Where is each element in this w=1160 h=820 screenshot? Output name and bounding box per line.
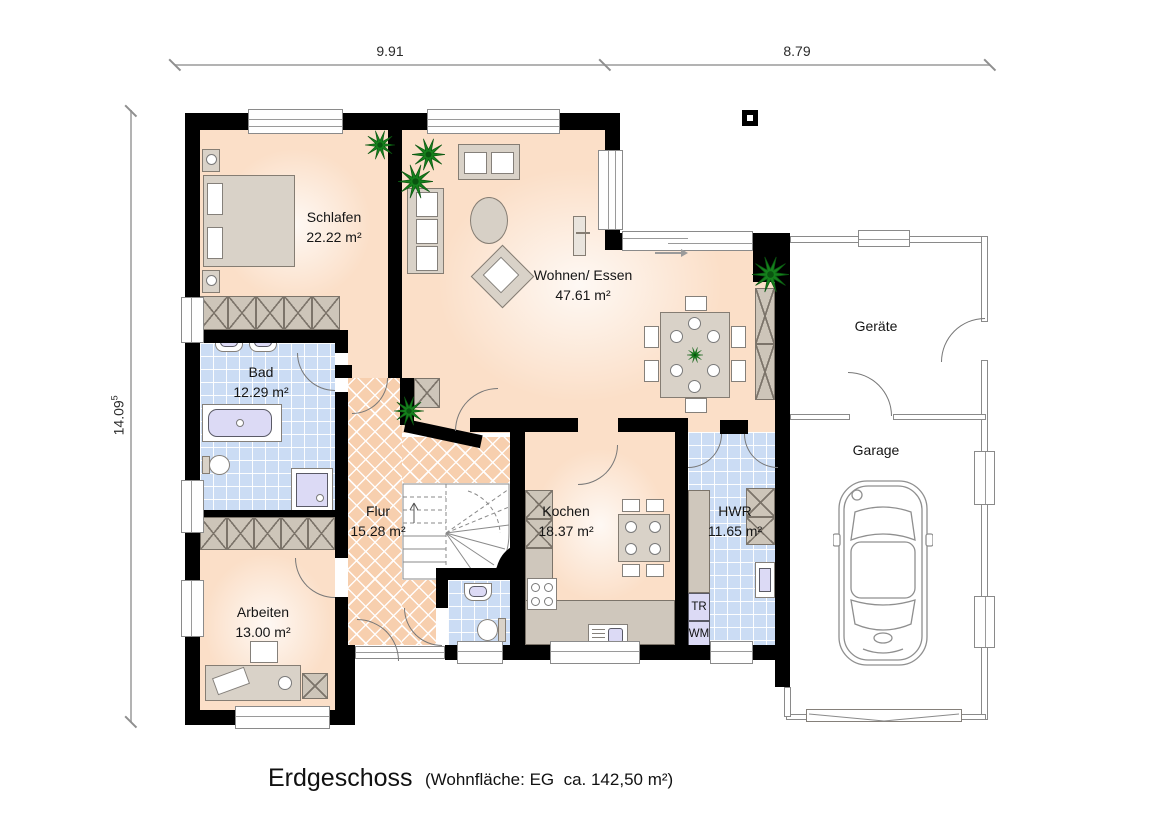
- dining-chair: [644, 360, 659, 382]
- plate: [670, 364, 683, 377]
- bad-cabinet-cell: [227, 517, 254, 550]
- room-name: Garage: [853, 440, 900, 460]
- wardrobe-cell: [284, 296, 312, 330]
- schlafen-label: Schlafen 22.22 m²: [306, 207, 361, 248]
- wardrobe-cell: [312, 296, 340, 330]
- shower-drain-icon: [316, 494, 324, 502]
- pillow: [207, 183, 223, 215]
- wall-bad-arbeiten: [185, 510, 348, 517]
- sliding-door-arrow: [655, 252, 681, 254]
- kochen-label: Kochen 18.37 m²: [538, 501, 593, 542]
- geraete-exterior-door-arc: [941, 318, 985, 362]
- kitchen-chair: [646, 499, 664, 512]
- hwr-label: HWR 11.65 m²: [708, 501, 762, 542]
- burner-icon: [544, 597, 553, 606]
- wardrobe-cell: [228, 296, 256, 330]
- wall-kitchen-west: [510, 430, 525, 645]
- plant-icon: [687, 347, 703, 363]
- window-arbeiten-south: [235, 706, 330, 729]
- toilet: [209, 455, 230, 475]
- wc-toilet-tank: [498, 618, 506, 642]
- bad-cabinet-cell: [308, 517, 335, 550]
- bad-cabinet-cell: [281, 517, 308, 550]
- garage-window-upper: [974, 451, 995, 505]
- sliding-door-arrowhead: [681, 249, 688, 257]
- dryer-label: TR: [688, 602, 710, 614]
- seat-cushion: [464, 152, 487, 174]
- room-area: 15.28 m²: [350, 521, 405, 541]
- window-wohnen-east: [598, 150, 623, 230]
- dim-left-value: 14.095: [110, 385, 127, 445]
- garage-window-lower: [974, 596, 995, 648]
- room-name: Wohnen/ Essen: [534, 265, 633, 285]
- floor-area-note: (Wohnfläche: EG ca. 142,50 m²): [425, 770, 673, 790]
- dining-chair: [685, 296, 707, 311]
- room-name: Flur: [350, 501, 405, 521]
- wc-sink-basin: [469, 586, 487, 597]
- dim-left-superscript: 5: [110, 395, 120, 400]
- kitchen-chair: [622, 564, 640, 577]
- burner-icon: [531, 583, 540, 592]
- bad-label: Bad 12.29 m²: [233, 362, 288, 403]
- dining-chair: [644, 326, 659, 348]
- wardrobe-cell: [256, 296, 284, 330]
- flur-floor-upper: [402, 437, 510, 483]
- spiral-staircase: [402, 483, 510, 580]
- garage-door: [806, 709, 962, 722]
- annex-right-wall-3: [981, 503, 988, 600]
- terrace-sliding-door: [622, 231, 753, 251]
- room-name: Geräte: [855, 316, 898, 336]
- wall-kitchen-hwr: [675, 432, 688, 645]
- lamp-icon: [206, 154, 217, 165]
- dim-top-left-value: 9.91: [340, 43, 440, 59]
- plate: [649, 521, 661, 533]
- seat-cushion: [491, 152, 514, 174]
- dim-line-left: [130, 110, 132, 722]
- hwr-counter: [688, 490, 710, 593]
- plate: [625, 521, 637, 533]
- dining-chair: [685, 398, 707, 413]
- office-cabinet: [302, 673, 328, 699]
- plate: [649, 543, 661, 555]
- dim-top-right-value: 8.79: [747, 43, 847, 59]
- plate: [625, 543, 637, 555]
- wohnen-essen-label: Wohnen/ Essen 47.61 m²: [534, 265, 633, 306]
- geraete-window: [858, 230, 910, 247]
- garage-left-step: [784, 687, 791, 717]
- burner-icon: [544, 583, 553, 592]
- floor-title: Erdgeschoss: [268, 764, 413, 793]
- shower-basin: [296, 473, 328, 507]
- annex-right-wall-1: [981, 236, 988, 322]
- garage-label: Garage: [853, 440, 900, 460]
- wall-nook-left: [335, 365, 352, 378]
- window-schlafen: [248, 109, 343, 134]
- dining-cabinet-cell: [755, 288, 775, 344]
- flur-label: Flur 15.28 m²: [350, 501, 405, 542]
- car-icon: [833, 478, 933, 668]
- dining-cabinet-cell: [755, 344, 775, 400]
- wall-interior-west-b: [335, 392, 348, 558]
- window-kochen-south: [550, 641, 640, 664]
- plate: [688, 380, 701, 393]
- room-name: HWR: [708, 501, 762, 521]
- window-wc-south: [457, 641, 503, 664]
- wall-schlafen-bad: [185, 330, 348, 343]
- annex-right-wall-2: [981, 360, 988, 455]
- geraete-garage-divider-2: [893, 414, 986, 420]
- window-bad-west: [181, 480, 204, 533]
- geraete-garage-divider-1: [790, 414, 850, 420]
- wall-living-south-b: [618, 418, 688, 432]
- seat-cushion: [416, 246, 438, 271]
- room-name: Bad: [233, 362, 288, 382]
- pillow: [207, 227, 223, 259]
- dim-line-top: [175, 64, 990, 66]
- plate: [707, 330, 720, 343]
- kitchen-chair: [646, 564, 664, 577]
- garage-door-chevron: [807, 712, 961, 723]
- room-name: Schlafen: [306, 207, 361, 227]
- hwr-sink-basin: [759, 568, 771, 592]
- wardrobe-cell: [200, 296, 228, 330]
- schlafen-nook-floor: [348, 330, 388, 378]
- cooktop: [527, 578, 557, 610]
- tv: [573, 216, 586, 256]
- dining-chair: [731, 360, 746, 382]
- room-area: 13.00 m²: [235, 622, 290, 642]
- kitchen-table: [618, 514, 670, 562]
- window-hwr-south: [710, 641, 753, 664]
- room-area: 11.65 m²: [708, 521, 762, 541]
- geraete-label: Geräte: [855, 316, 898, 336]
- wall-interior-west-c: [335, 597, 348, 725]
- chimney-flue: [747, 115, 753, 121]
- plant-icon: [394, 396, 424, 426]
- drain-icon: [236, 419, 244, 427]
- room-area: 18.37 m²: [538, 521, 593, 541]
- room-area: 47.61 m²: [534, 285, 633, 305]
- window-schlafen-west: [181, 297, 204, 343]
- plate: [670, 330, 683, 343]
- window-arbeiten-west: [181, 580, 204, 637]
- plant-icon: [752, 256, 789, 293]
- wall-hwr-top-post: [720, 420, 748, 434]
- room-area: 12.29 m²: [233, 382, 288, 402]
- wall-wc-west: [436, 580, 448, 608]
- room-name: Kochen: [538, 501, 593, 521]
- kitchen-chair: [622, 499, 640, 512]
- plant-icon: [398, 164, 433, 199]
- geraete-garage-door-arc: [848, 372, 892, 416]
- annex-right-wall-4: [981, 646, 988, 720]
- dining-chair: [731, 326, 746, 348]
- dim-left-number: 14.09: [110, 400, 126, 435]
- plant-icon: [365, 130, 395, 160]
- plate: [707, 364, 720, 377]
- floor-plan: TR WM: [0, 0, 1160, 820]
- room-name: Arbeiten: [235, 602, 290, 622]
- room-area: 22.22 m²: [306, 227, 361, 247]
- office-chair: [250, 641, 278, 663]
- rug: [470, 197, 508, 244]
- arbeiten-label: Arbeiten 13.00 m²: [235, 602, 290, 643]
- wall-wc-top: [436, 568, 510, 580]
- tv-stand: [576, 232, 590, 234]
- lamp-icon: [206, 275, 217, 286]
- burner-icon: [531, 597, 540, 606]
- window-wohnen-top: [427, 109, 560, 134]
- wc-toilet: [477, 619, 498, 641]
- plate: [688, 317, 701, 330]
- seat-cushion: [416, 219, 438, 244]
- washer-label: WM: [688, 629, 710, 641]
- bad-cabinet-cell: [200, 517, 227, 550]
- bad-cabinet-cell: [254, 517, 281, 550]
- desk-lamp-icon: [278, 676, 292, 690]
